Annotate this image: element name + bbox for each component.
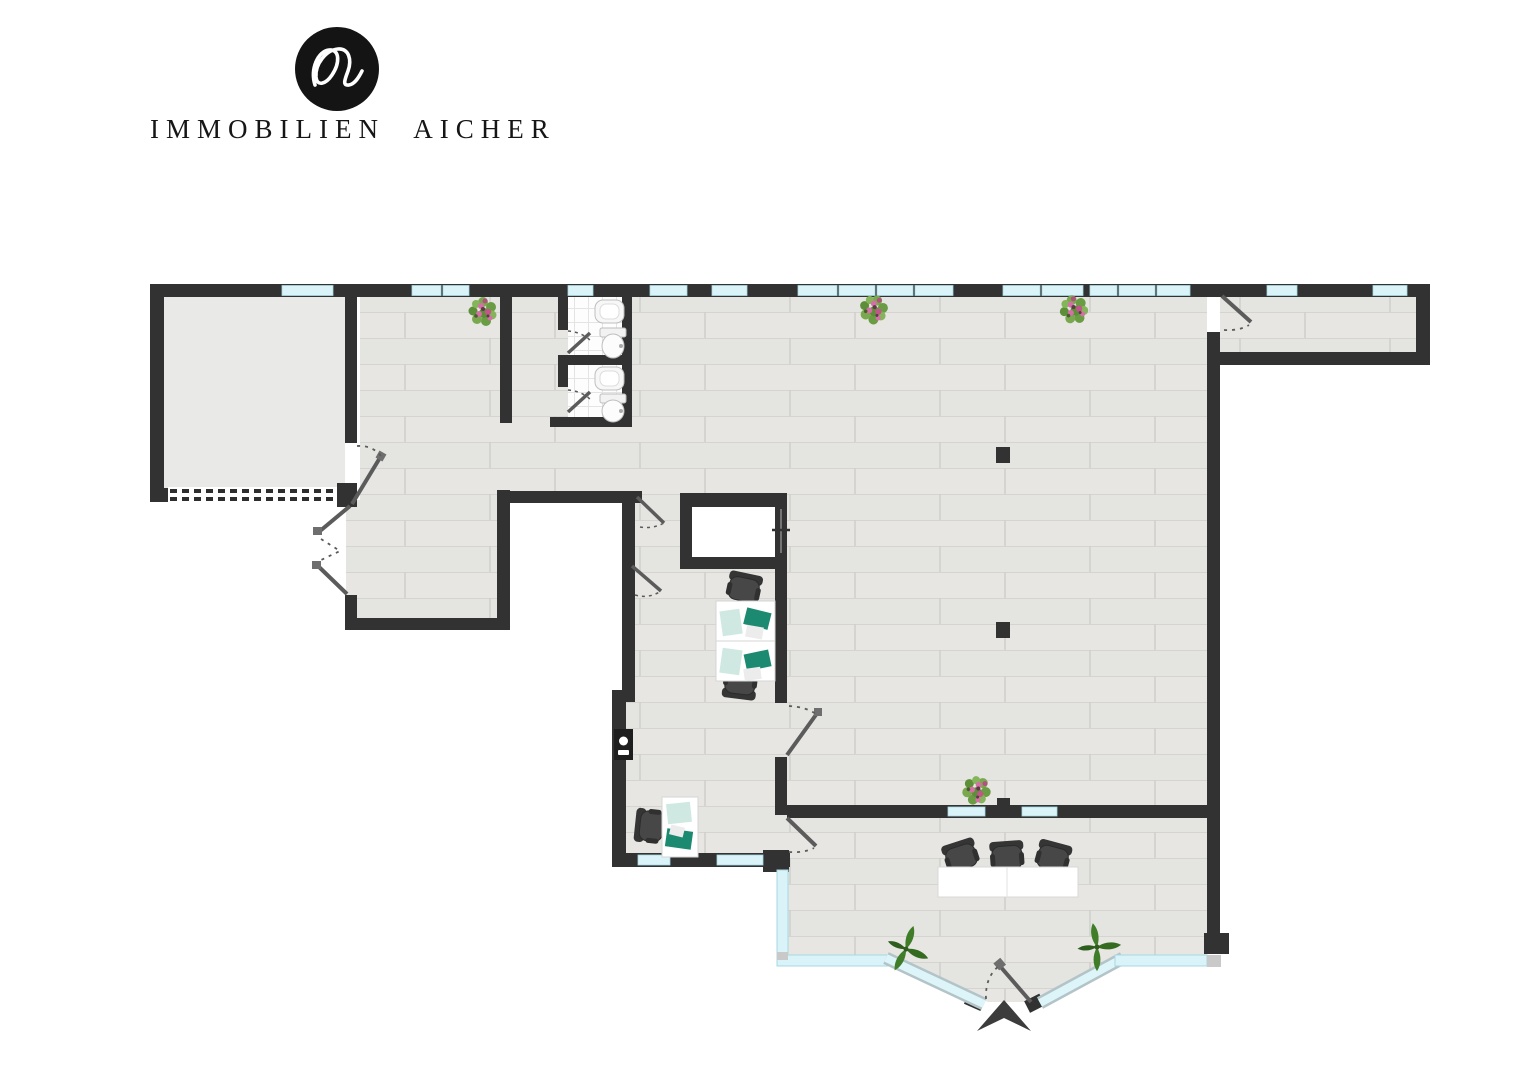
- pillar: [996, 622, 1010, 638]
- left-wing-floor: [345, 500, 497, 618]
- sink-icon: [595, 300, 624, 323]
- notepad: [666, 802, 692, 824]
- floor-plan-page: IMMOBILIEN AICHER: [0, 0, 1528, 1080]
- toilet-icon: [600, 394, 626, 422]
- notepad: [719, 609, 742, 637]
- conference-table: [938, 836, 1078, 897]
- floor-plan: [0, 0, 1528, 1080]
- toilet-icon: [600, 328, 626, 358]
- garage-door-dashes: [168, 487, 337, 502]
- sink-icon: [595, 367, 624, 390]
- storage-room-floor: [692, 507, 775, 557]
- right-wing-floor: [1220, 297, 1417, 355]
- wall-intercom-icon: [614, 729, 633, 760]
- garage-floor: [164, 297, 345, 488]
- entrance-arrow-icon: [977, 1000, 1031, 1031]
- pillar: [996, 447, 1010, 463]
- notepad: [719, 648, 742, 676]
- office-chair-icon: [989, 840, 1025, 870]
- office-chair-icon: [633, 808, 664, 845]
